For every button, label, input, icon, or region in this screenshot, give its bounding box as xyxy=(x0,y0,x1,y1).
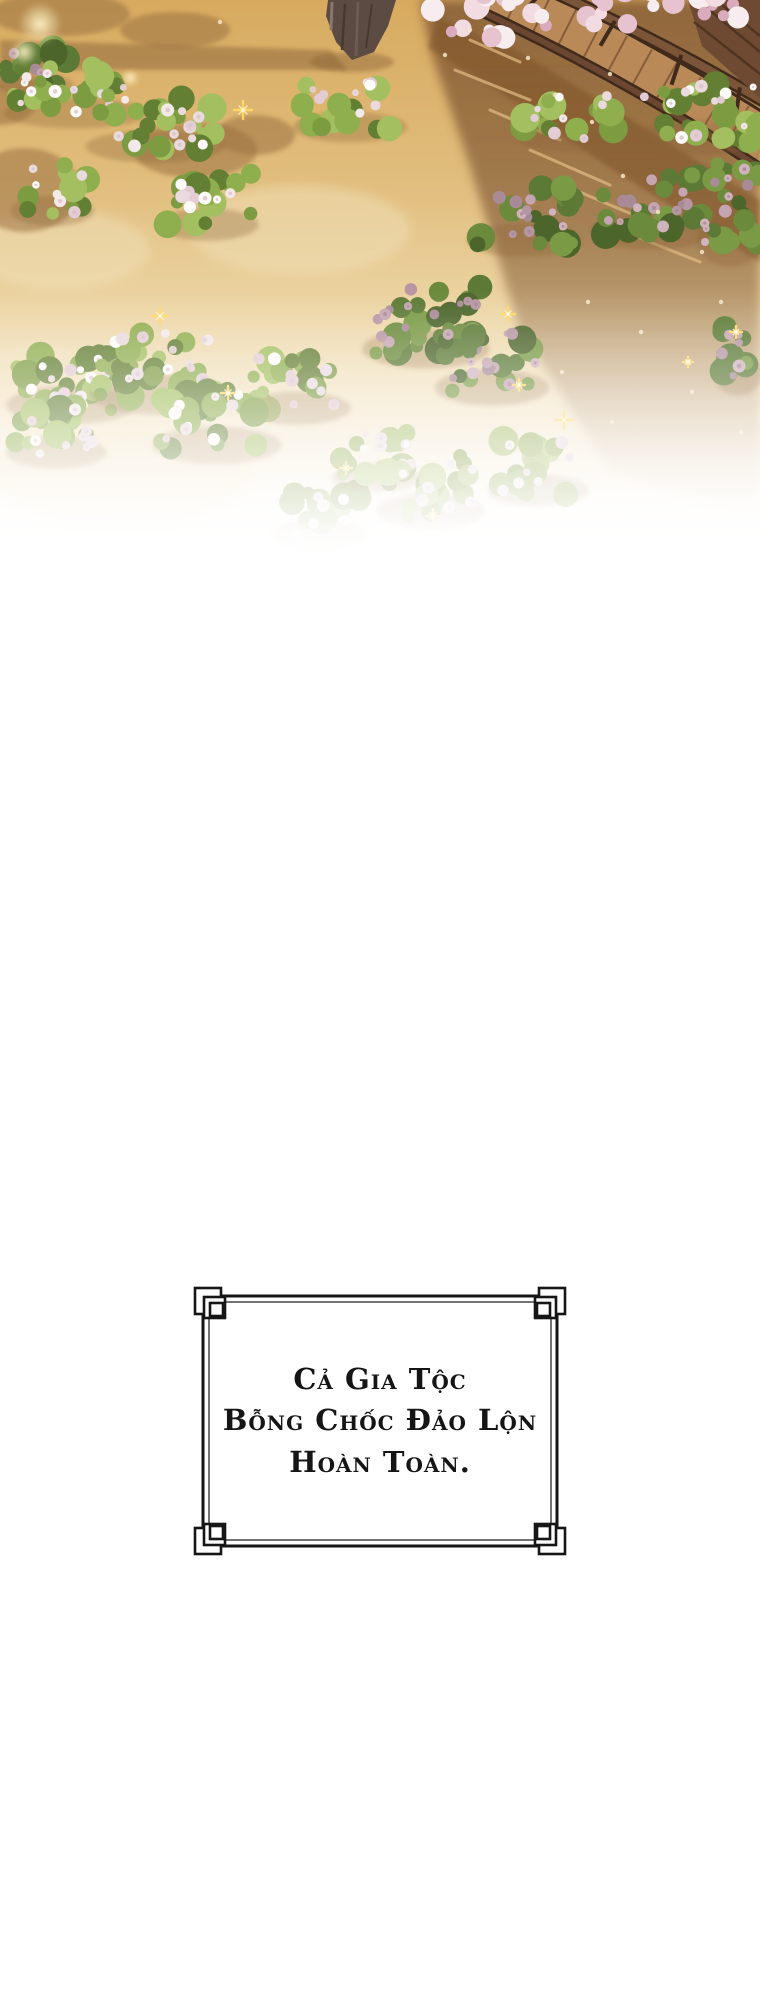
flower-center xyxy=(203,196,208,201)
flower xyxy=(364,80,375,91)
flower-center xyxy=(354,91,356,93)
bush-foliage xyxy=(57,157,73,173)
petal-speck xyxy=(443,53,447,57)
petal-speck xyxy=(590,120,594,124)
flower xyxy=(530,114,538,122)
flower-center xyxy=(189,124,193,128)
caption-line: hoàn toàn. xyxy=(289,1442,471,1483)
bush-foliage xyxy=(533,236,548,251)
sparkle-core xyxy=(241,108,244,111)
bush-foliage xyxy=(0,60,13,73)
blossom xyxy=(718,10,729,21)
flower-center xyxy=(562,225,565,228)
caption-line: bỗng chốc đảo lộn xyxy=(223,1400,537,1441)
bush-foliage xyxy=(596,187,611,202)
blossom xyxy=(647,0,659,12)
flower xyxy=(678,187,687,196)
scene-illustration xyxy=(0,0,760,600)
flower-center xyxy=(53,89,58,94)
caption-box: Cả gia tộc bỗng chốc đảo lộn hoàn toàn. xyxy=(193,1286,567,1556)
bush-foliage xyxy=(46,207,59,220)
flower-center xyxy=(172,132,175,135)
bush-foliage xyxy=(241,164,261,184)
bush-foliage xyxy=(731,195,746,210)
flower xyxy=(198,140,208,150)
bush-foliage xyxy=(659,126,675,142)
flower xyxy=(175,190,188,203)
flower xyxy=(710,178,719,187)
flower xyxy=(534,106,540,112)
flower-center xyxy=(562,117,565,120)
bush-foliage xyxy=(470,236,486,252)
flower-center xyxy=(680,203,683,206)
flower xyxy=(657,220,669,232)
flower xyxy=(701,238,709,246)
petal-speck xyxy=(218,20,222,24)
flower xyxy=(719,205,732,218)
bush-foliage xyxy=(84,61,114,91)
scene-svg xyxy=(0,0,760,600)
flower xyxy=(604,216,613,225)
flower xyxy=(370,100,380,110)
flower-center xyxy=(727,177,730,180)
petal-speck xyxy=(608,72,612,76)
flower xyxy=(548,127,561,140)
flower-center xyxy=(699,84,704,89)
light-glow xyxy=(121,69,139,87)
canopy-dapple-shadow xyxy=(215,115,295,155)
flower xyxy=(681,87,690,96)
bush-foliage xyxy=(291,93,314,116)
flower-center xyxy=(165,108,170,113)
flower-center xyxy=(621,199,625,203)
caption-line: Cả gia tộc xyxy=(293,1359,466,1400)
flower-center xyxy=(694,133,698,137)
flower xyxy=(355,108,364,117)
blossom xyxy=(534,9,549,24)
flower-center xyxy=(74,110,78,114)
flower-center xyxy=(511,233,514,236)
flower-center xyxy=(669,102,672,105)
flower-center xyxy=(743,125,745,127)
petal-speck xyxy=(468,28,472,32)
bush-foliage xyxy=(550,232,575,257)
flower-center xyxy=(58,199,62,203)
bush-foliage xyxy=(551,175,577,201)
bark-highlight xyxy=(331,2,332,30)
flower xyxy=(17,100,24,107)
bush-foliage xyxy=(154,210,182,238)
caption-text: Cả gia tộc bỗng chốc đảo lộn hoàn toàn. xyxy=(213,1308,547,1534)
petal-speck xyxy=(656,210,660,214)
light-glow xyxy=(10,38,38,66)
petal-speck xyxy=(621,174,625,178)
bark-streak xyxy=(356,2,358,56)
bush-foliage xyxy=(139,118,155,134)
flower xyxy=(493,191,506,204)
flower xyxy=(525,194,535,204)
bush-foliage xyxy=(714,127,735,148)
flower xyxy=(128,140,141,153)
flower-center xyxy=(679,135,683,139)
flower-center xyxy=(727,195,730,198)
blossom xyxy=(727,6,749,28)
blossom xyxy=(482,27,502,47)
flower-center xyxy=(526,215,529,218)
flower-center xyxy=(752,86,754,88)
flower-center xyxy=(619,220,621,222)
petal-speck xyxy=(553,93,557,97)
bush-foliage xyxy=(312,118,331,137)
bush-foliage xyxy=(722,232,740,250)
bush-foliage xyxy=(92,104,109,121)
flower xyxy=(549,208,556,215)
canopy-dapple-shadow xyxy=(120,12,230,48)
flower xyxy=(742,179,753,190)
flower-center xyxy=(742,167,746,171)
bush-foliage xyxy=(658,86,670,98)
bush-foliage xyxy=(655,180,673,198)
flower xyxy=(22,72,32,82)
flower xyxy=(602,91,612,101)
flower xyxy=(598,100,607,109)
flower-center xyxy=(652,206,656,210)
flower-center xyxy=(39,71,42,74)
flower xyxy=(184,201,196,213)
flower xyxy=(633,203,642,212)
petal-speck xyxy=(700,250,704,254)
bush-foliage xyxy=(327,93,351,117)
bush-foliage xyxy=(128,103,145,120)
flower xyxy=(188,134,196,142)
white-fade-overlay xyxy=(0,290,760,600)
bush-foliage xyxy=(684,167,700,183)
flower-center xyxy=(73,88,76,91)
flower-center xyxy=(29,90,33,94)
bush-foliage xyxy=(19,201,36,218)
flower-center xyxy=(197,115,201,119)
flower-center xyxy=(312,88,314,90)
flower xyxy=(522,205,532,215)
flower xyxy=(121,96,129,104)
blossom xyxy=(698,7,712,21)
bush-foliage xyxy=(628,212,654,238)
webtoon-page: { "page": { "background": "#ffffff", "wi… xyxy=(0,0,760,2000)
flower-center xyxy=(675,209,678,212)
bush-foliage xyxy=(101,89,115,103)
flower-center xyxy=(229,191,233,195)
flower xyxy=(175,179,186,190)
flower-center xyxy=(582,137,585,140)
flower xyxy=(717,96,724,103)
flower-center xyxy=(514,200,519,205)
flower-center xyxy=(117,134,121,138)
blossom xyxy=(446,26,457,37)
bush-foliage xyxy=(733,209,755,231)
flower-center xyxy=(46,72,49,75)
flower xyxy=(646,174,657,185)
bush-foliage xyxy=(149,135,171,157)
flower xyxy=(640,92,649,101)
petal-speck xyxy=(526,56,530,60)
flower xyxy=(178,107,186,115)
bush-foliage xyxy=(244,207,258,221)
blossom xyxy=(618,14,637,33)
flower-center xyxy=(35,184,38,187)
flower-center xyxy=(32,167,35,170)
flower-center xyxy=(703,222,706,225)
flower-center xyxy=(527,230,531,234)
flower xyxy=(77,170,88,181)
bush-foliage xyxy=(199,216,213,230)
flower-center xyxy=(216,198,219,201)
flower-center xyxy=(72,210,76,214)
bush-foliage xyxy=(377,116,402,141)
flower-center xyxy=(178,143,182,147)
flower xyxy=(314,93,325,104)
